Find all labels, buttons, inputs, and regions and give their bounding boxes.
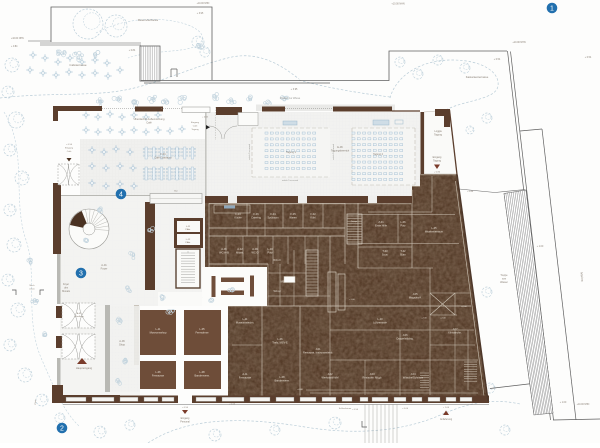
svg-text:L-10: L-10: [377, 317, 383, 321]
svg-text:F-05: F-05: [290, 212, 296, 216]
svg-text:+2.00: +2.00: [461, 306, 467, 308]
svg-text:Reservierbares: Reservierbares: [138, 18, 159, 22]
svg-text:Monats: Monats: [62, 290, 71, 293]
svg-text:zum: zum: [502, 278, 506, 280]
svg-text:Haupteingang: Haupteingang: [76, 366, 93, 370]
svg-text:L-10: L-10: [267, 247, 273, 251]
svg-text:T-03: T-03: [382, 249, 388, 253]
svg-text:Café: Café: [146, 121, 152, 125]
svg-text:Fernausse: Fernausse: [152, 373, 165, 377]
svg-text:Fernwärme: Fernwärme: [195, 330, 209, 334]
svg-text:Z-01: Z-01: [378, 220, 384, 224]
svg-text:J-06: J-06: [402, 333, 408, 337]
svg-text:Trafo, MSV-E: Trafo, MSV-E: [272, 340, 288, 344]
svg-text:Eingang: Eingang: [191, 122, 200, 124]
svg-text:2: 2: [60, 426, 64, 433]
svg-text:Putz: Putz: [400, 223, 406, 227]
svg-text:L-06: L-06: [400, 220, 406, 224]
svg-text:L-05: L-05: [199, 327, 205, 331]
svg-text:A-11: A-11: [242, 372, 248, 376]
svg-text:Eingang: Eingang: [65, 147, 74, 149]
svg-text:+ 0.54: + 0.54: [66, 144, 73, 146]
svg-text:Shop: Shop: [119, 342, 126, 346]
svg-text:L-08: L-08: [199, 370, 205, 374]
svg-text:Anlieferung: Anlieferung: [440, 418, 453, 421]
svg-text:Schluckrinne: Schluckrinne: [339, 407, 352, 410]
svg-text:Souv.: Souv.: [382, 252, 389, 256]
svg-text:+10.00 NHN: +10.00 NHN: [577, 404, 590, 406]
svg-text:WC-H: WC-H: [273, 289, 280, 293]
svg-text:Windfang: Windfang: [74, 316, 84, 318]
svg-text:+2.00: +2.00: [440, 318, 446, 320]
svg-text:Tagung 1: Tagung 1: [286, 151, 297, 154]
svg-text:mobile Trennwand: mobile Trennwand: [249, 144, 251, 160]
svg-text:P.Abt.: P.Abt.: [185, 241, 191, 244]
svg-text:mobile Trennwand: mobile Trennwand: [333, 144, 335, 160]
svg-text:+ 1.00: + 1.00: [560, 402, 567, 404]
svg-text:F-04: F-04: [270, 212, 276, 216]
svg-text:Putz: Putz: [267, 250, 273, 254]
svg-text:Wasser: Wasser: [500, 281, 508, 284]
svg-text:Küche: Küche: [234, 215, 242, 219]
svg-text:L-11: L-11: [156, 327, 162, 331]
svg-text:Fernausse: Fernausse: [239, 375, 252, 379]
svg-text:J-01: J-01: [315, 347, 321, 351]
svg-text:T-02: T-02: [400, 249, 406, 253]
svg-text:Kühl: Kühl: [310, 215, 316, 219]
svg-text:Nach: Nach: [29, 285, 35, 287]
svg-text:Büro: Büro: [400, 252, 406, 256]
svg-text:+10.00 NHN: +10.00 NHN: [512, 41, 525, 44]
svg-text:Mitarb.: Mitarb.: [236, 250, 244, 254]
svg-text:L-06: L-06: [277, 337, 283, 341]
svg-text:Treppe: Treppe: [351, 221, 358, 223]
svg-text:+10.00 NHN: +10.00 NHN: [11, 38, 24, 40]
svg-text:Klimatechn.: Klimatechn.: [448, 330, 462, 334]
svg-text:+ 0.54: + 0.54: [352, 409, 359, 411]
svg-text:3: 3: [79, 271, 83, 278]
svg-text:1: 1: [550, 6, 554, 13]
svg-text:+ 0.84: + 0.84: [129, 50, 136, 52]
svg-text:Foyer: Foyer: [101, 267, 108, 271]
svg-text:+0.00: +0.00: [297, 389, 303, 391]
svg-text:Restaurat. Instrumentenb.: Restaurat. Instrumentenb.: [303, 350, 333, 354]
svg-text:Platz: Platz: [34, 400, 37, 405]
svg-text:Bandenverw.: Bandenverw.: [195, 373, 210, 377]
svg-text:A-12: A-12: [237, 247, 243, 251]
svg-text:Catering: Catering: [251, 215, 261, 219]
svg-text:Doppelstöckig.: Doppelstöckig.: [396, 336, 413, 340]
svg-text:+ 0.84: + 0.84: [467, 191, 474, 193]
svg-text:F-02: F-02: [310, 212, 316, 216]
svg-text:Spülraum: Spülraum: [267, 215, 278, 219]
svg-text:F-01: F-01: [160, 152, 166, 156]
svg-text:+ 0.84: + 0.84: [202, 117, 209, 119]
svg-text:J-03: J-03: [369, 372, 375, 376]
svg-text:A-09: A-09: [252, 247, 258, 251]
svg-text:+ 1.00: + 1.00: [537, 246, 544, 248]
svg-text:+10.00 NHN: +10.00 NHN: [391, 3, 404, 6]
svg-text:Restaurie. Mi.gb: Restaurie. Mi.gb: [363, 375, 382, 379]
svg-text:+ 0.54: + 0.54: [229, 404, 236, 406]
svg-text:+ 1.00: + 1.00: [443, 407, 450, 409]
svg-text:Café: Café: [193, 125, 198, 127]
svg-text:+ 0.00: + 0.00: [402, 408, 409, 410]
svg-text:Bar: Bar: [174, 190, 178, 193]
svg-text:L-11: L-11: [243, 317, 249, 321]
svg-text:Tagung: Tagung: [433, 159, 442, 162]
svg-text:E-06: E-06: [337, 145, 343, 149]
svg-text:mobile Trennwand: mobile Trennwand: [282, 180, 298, 182]
svg-text:+1.00: +1.00: [349, 299, 355, 301]
svg-text:Caféterrasse: Caféterrasse: [69, 63, 87, 67]
svg-text:J-02: J-02: [327, 372, 333, 376]
svg-text:Waren: Waren: [289, 215, 297, 219]
svg-text:4: 4: [119, 192, 123, 199]
svg-text:A-01: A-01: [101, 263, 107, 267]
svg-text:WC-D: WC-D: [251, 250, 258, 254]
svg-text:Museumsshop: Museumsshop: [150, 330, 167, 334]
svg-text:+ 0.54: + 0.54: [585, 57, 592, 59]
svg-text:A-03: A-03: [77, 312, 82, 315]
svg-text:Mitarbeiterraum: Mitarbeiterraum: [425, 229, 443, 233]
svg-text:Café Gastraum: Café Gastraum: [154, 156, 172, 160]
svg-text:+ 0.84: + 0.84: [11, 46, 18, 48]
svg-text:WC-H-B: WC-H-B: [219, 250, 229, 254]
svg-text:innen: innen: [29, 288, 35, 290]
svg-text:Werkstatt/AbM: Werkstatt/AbM: [322, 375, 339, 379]
svg-text:L-05: L-05: [431, 226, 437, 230]
svg-text:+ 3.95: + 3.95: [197, 13, 204, 15]
svg-text:L-06: L-06: [155, 370, 161, 374]
svg-text:J-04: J-04: [410, 372, 416, 376]
svg-text:F-06: F-06: [253, 212, 259, 216]
svg-text:+ 0.54: + 0.54: [182, 407, 189, 409]
svg-text:Parkett zur Wiese: Parkett zur Wiese: [280, 96, 301, 100]
svg-text:P.Abt.: P.Abt.: [185, 228, 191, 231]
svg-text:Café: Café: [67, 151, 72, 153]
svg-text:+ 3.95: + 3.95: [291, 88, 298, 91]
svg-text:+10.00 NHN: +10.00 NHN: [197, 3, 210, 5]
svg-text:Erste Hilfe: Erste Hilfe: [375, 223, 388, 227]
svg-text:F-03: F-03: [235, 212, 241, 216]
svg-text:Lüftzentrale: Lüftzentrale: [373, 320, 387, 324]
svg-text:+ 0.84: + 0.84: [434, 172, 441, 174]
svg-text:Wäsche/Schmutz: Wäsche/Schmutz: [403, 375, 424, 379]
svg-text:WC-O: WC-O: [273, 258, 280, 262]
svg-text:Überdachte Außennutzung: Überdachte Außennutzung: [134, 117, 165, 121]
svg-text:J-07: J-07: [452, 327, 458, 331]
svg-text:Bandenverw.: Bandenverw.: [275, 378, 290, 382]
svg-text:+2.00: +2.00: [421, 318, 427, 320]
svg-text:Tagung: Tagung: [434, 133, 443, 136]
svg-text:+ 0.54: + 0.54: [494, 59, 501, 61]
svg-text:A-06: A-06: [119, 339, 125, 343]
svg-text:L-08: L-08: [279, 375, 285, 379]
svg-text:Personal: Personal: [180, 420, 190, 423]
svg-text:Magazin/A: Magazin/A: [409, 295, 422, 299]
svg-text:A-06: A-06: [221, 247, 227, 251]
svg-text:J-05: J-05: [412, 292, 418, 296]
svg-text:Treppe: Treppe: [500, 274, 508, 277]
svg-text:Kastanienterrasse: Kastanienterrasse: [466, 75, 489, 79]
svg-text:Museumstechn.: Museumstechn.: [236, 320, 255, 324]
svg-text:L-12: L-12: [186, 239, 191, 241]
svg-text:Tagung: Tagung: [191, 129, 199, 131]
svg-text:Tagung 2: Tagung 2: [373, 153, 384, 156]
